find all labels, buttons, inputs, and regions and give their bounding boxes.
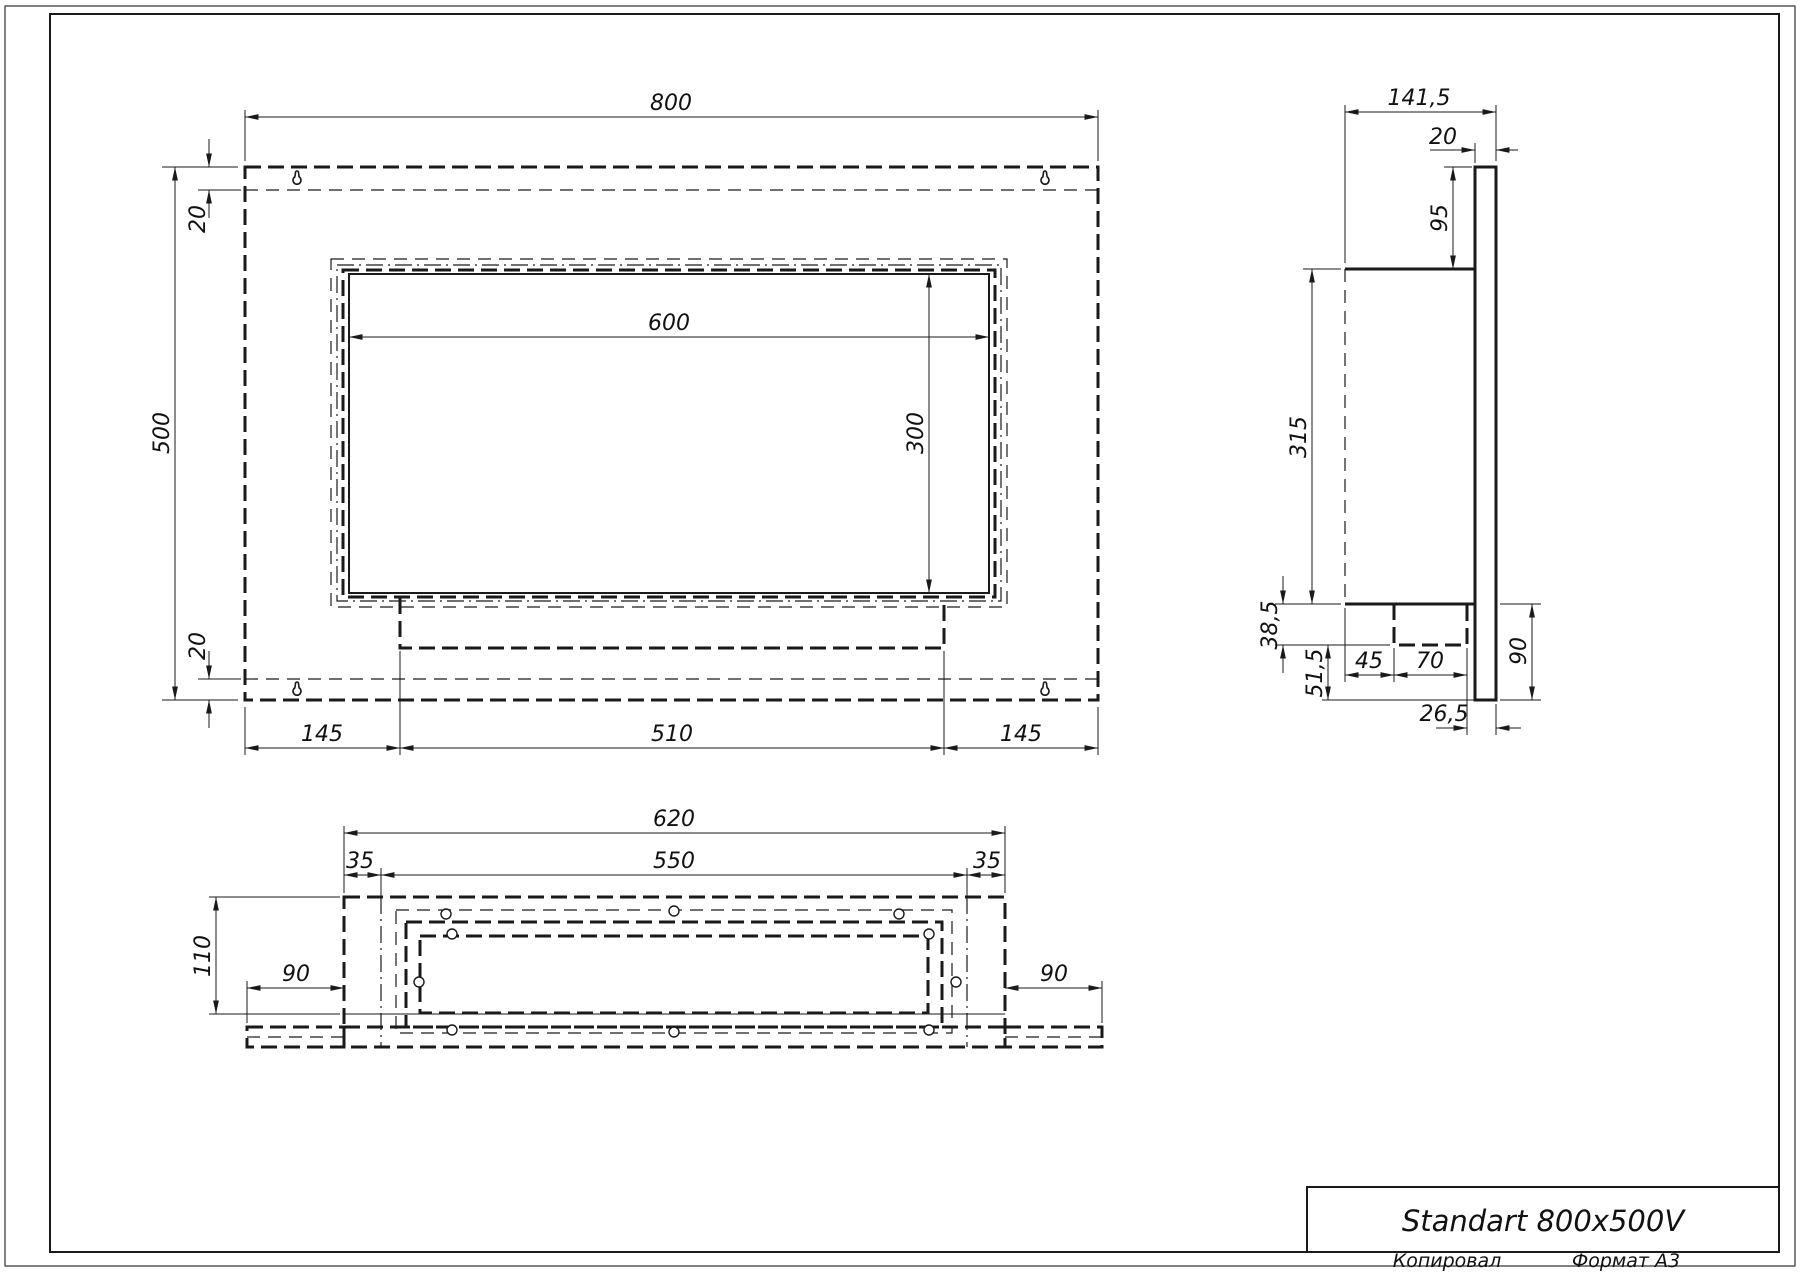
dim-label: 620 — [653, 807, 695, 832]
dim-rear-inset: 26,5 — [1420, 702, 1521, 735]
dim-side-depth: 141,5 — [1345, 86, 1496, 263]
dim-label: 550 — [653, 849, 695, 874]
page-edge — [5, 6, 1795, 1266]
dim-label: 38,5 — [1258, 601, 1283, 650]
screw-hole — [669, 1027, 679, 1037]
dim-label: 600 — [648, 311, 690, 336]
stamp-copied-label: Копировал — [1393, 1250, 1502, 1272]
stamp-format-label: Формат A3 — [1572, 1250, 1680, 1272]
screw-hole — [441, 909, 451, 919]
dim-label: 20 — [186, 205, 211, 233]
dim-label: 300 — [904, 412, 929, 454]
back-panel-outline — [1475, 167, 1496, 700]
dim-label: 510 — [651, 722, 693, 747]
dim-front-width: 800 — [245, 91, 1098, 161]
drawing-title: Standart 800x500V — [1402, 1204, 1686, 1238]
drawing-border — [50, 14, 1779, 1252]
screw-hole — [924, 929, 934, 939]
dim-front-height: 500 — [150, 167, 238, 700]
keyhole-slot-icon — [293, 682, 301, 695]
title-block: Standart 800x500V Копировал Формат A3 — [1307, 1187, 1779, 1272]
dim-label: 20 — [186, 632, 211, 660]
dim-top-offset: 95 — [1428, 167, 1472, 269]
dim-label: 145 — [301, 722, 343, 747]
dim-opening-width: 600 — [349, 311, 989, 337]
screw-hole — [414, 977, 424, 987]
dim-label: 95 — [1428, 204, 1453, 232]
screw-hole — [894, 909, 904, 919]
keyhole-slot-icon — [1041, 171, 1049, 184]
dim-side-bracket: 90 — [1500, 604, 1541, 700]
drawing-page: 800 500 20 20 600 — [0, 0, 1800, 1273]
dim-lower-height: 51,5 — [1303, 645, 1328, 700]
tray-hidden-outline — [400, 598, 944, 648]
dim-label: 141,5 — [1388, 86, 1451, 111]
dim-bottom-depth: 110 — [191, 897, 340, 1014]
dim-label: 800 — [650, 91, 692, 116]
dim-front-bottom-chain: 145 510 145 — [245, 651, 1098, 755]
screw-hole — [447, 1025, 457, 1035]
dim-front-flange-bottom: 20 — [186, 632, 241, 728]
technical-drawing: 800 500 20 20 600 — [0, 0, 1800, 1273]
keyhole-slot-icon — [293, 171, 301, 184]
dim-label: 45 — [1355, 649, 1383, 674]
screw-hole — [924, 1025, 934, 1035]
dim-label: 35 — [973, 849, 1001, 874]
dim-label: 90 — [282, 962, 310, 987]
screw-hole — [447, 929, 457, 939]
bottom-view: 620 35 550 35 110 90 — [191, 807, 1102, 1047]
front-view: 800 500 20 20 600 — [150, 91, 1098, 755]
bottom-tray-inner — [420, 936, 928, 1013]
dim-label: 90 — [1040, 962, 1068, 987]
dim-label: 145 — [1000, 722, 1042, 747]
side-tray-outline — [1394, 604, 1467, 645]
bottom-body-outline — [344, 897, 1005, 1047]
dim-front-flange-top: 20 — [186, 139, 241, 233]
dim-label: 315 — [1287, 416, 1312, 458]
side-view: 141,5 20 95 315 38,5 — [1258, 86, 1541, 735]
dim-label: 500 — [150, 412, 175, 454]
dim-panel-thickness: 20 — [1429, 125, 1518, 163]
dim-opening-height: 300 — [904, 274, 929, 593]
dim-label: 35 — [346, 849, 374, 874]
dim-label: 110 — [191, 935, 216, 977]
dim-label: 70 — [1416, 649, 1444, 674]
keyhole-slot-icon — [1041, 682, 1049, 695]
dim-label: 51,5 — [1303, 649, 1328, 698]
dim-label: 90 — [1507, 637, 1532, 665]
dim-label: 26,5 — [1420, 702, 1469, 727]
front-frame-outline — [245, 167, 1098, 700]
dim-wing-right: 90 — [1005, 962, 1102, 1023]
bottom-tray-mid — [406, 922, 942, 1027]
dim-label: 20 — [1429, 125, 1457, 150]
screw-hole — [951, 977, 961, 987]
dim-body-height: 315 — [1275, 269, 1341, 604]
screw-hole — [669, 906, 679, 916]
